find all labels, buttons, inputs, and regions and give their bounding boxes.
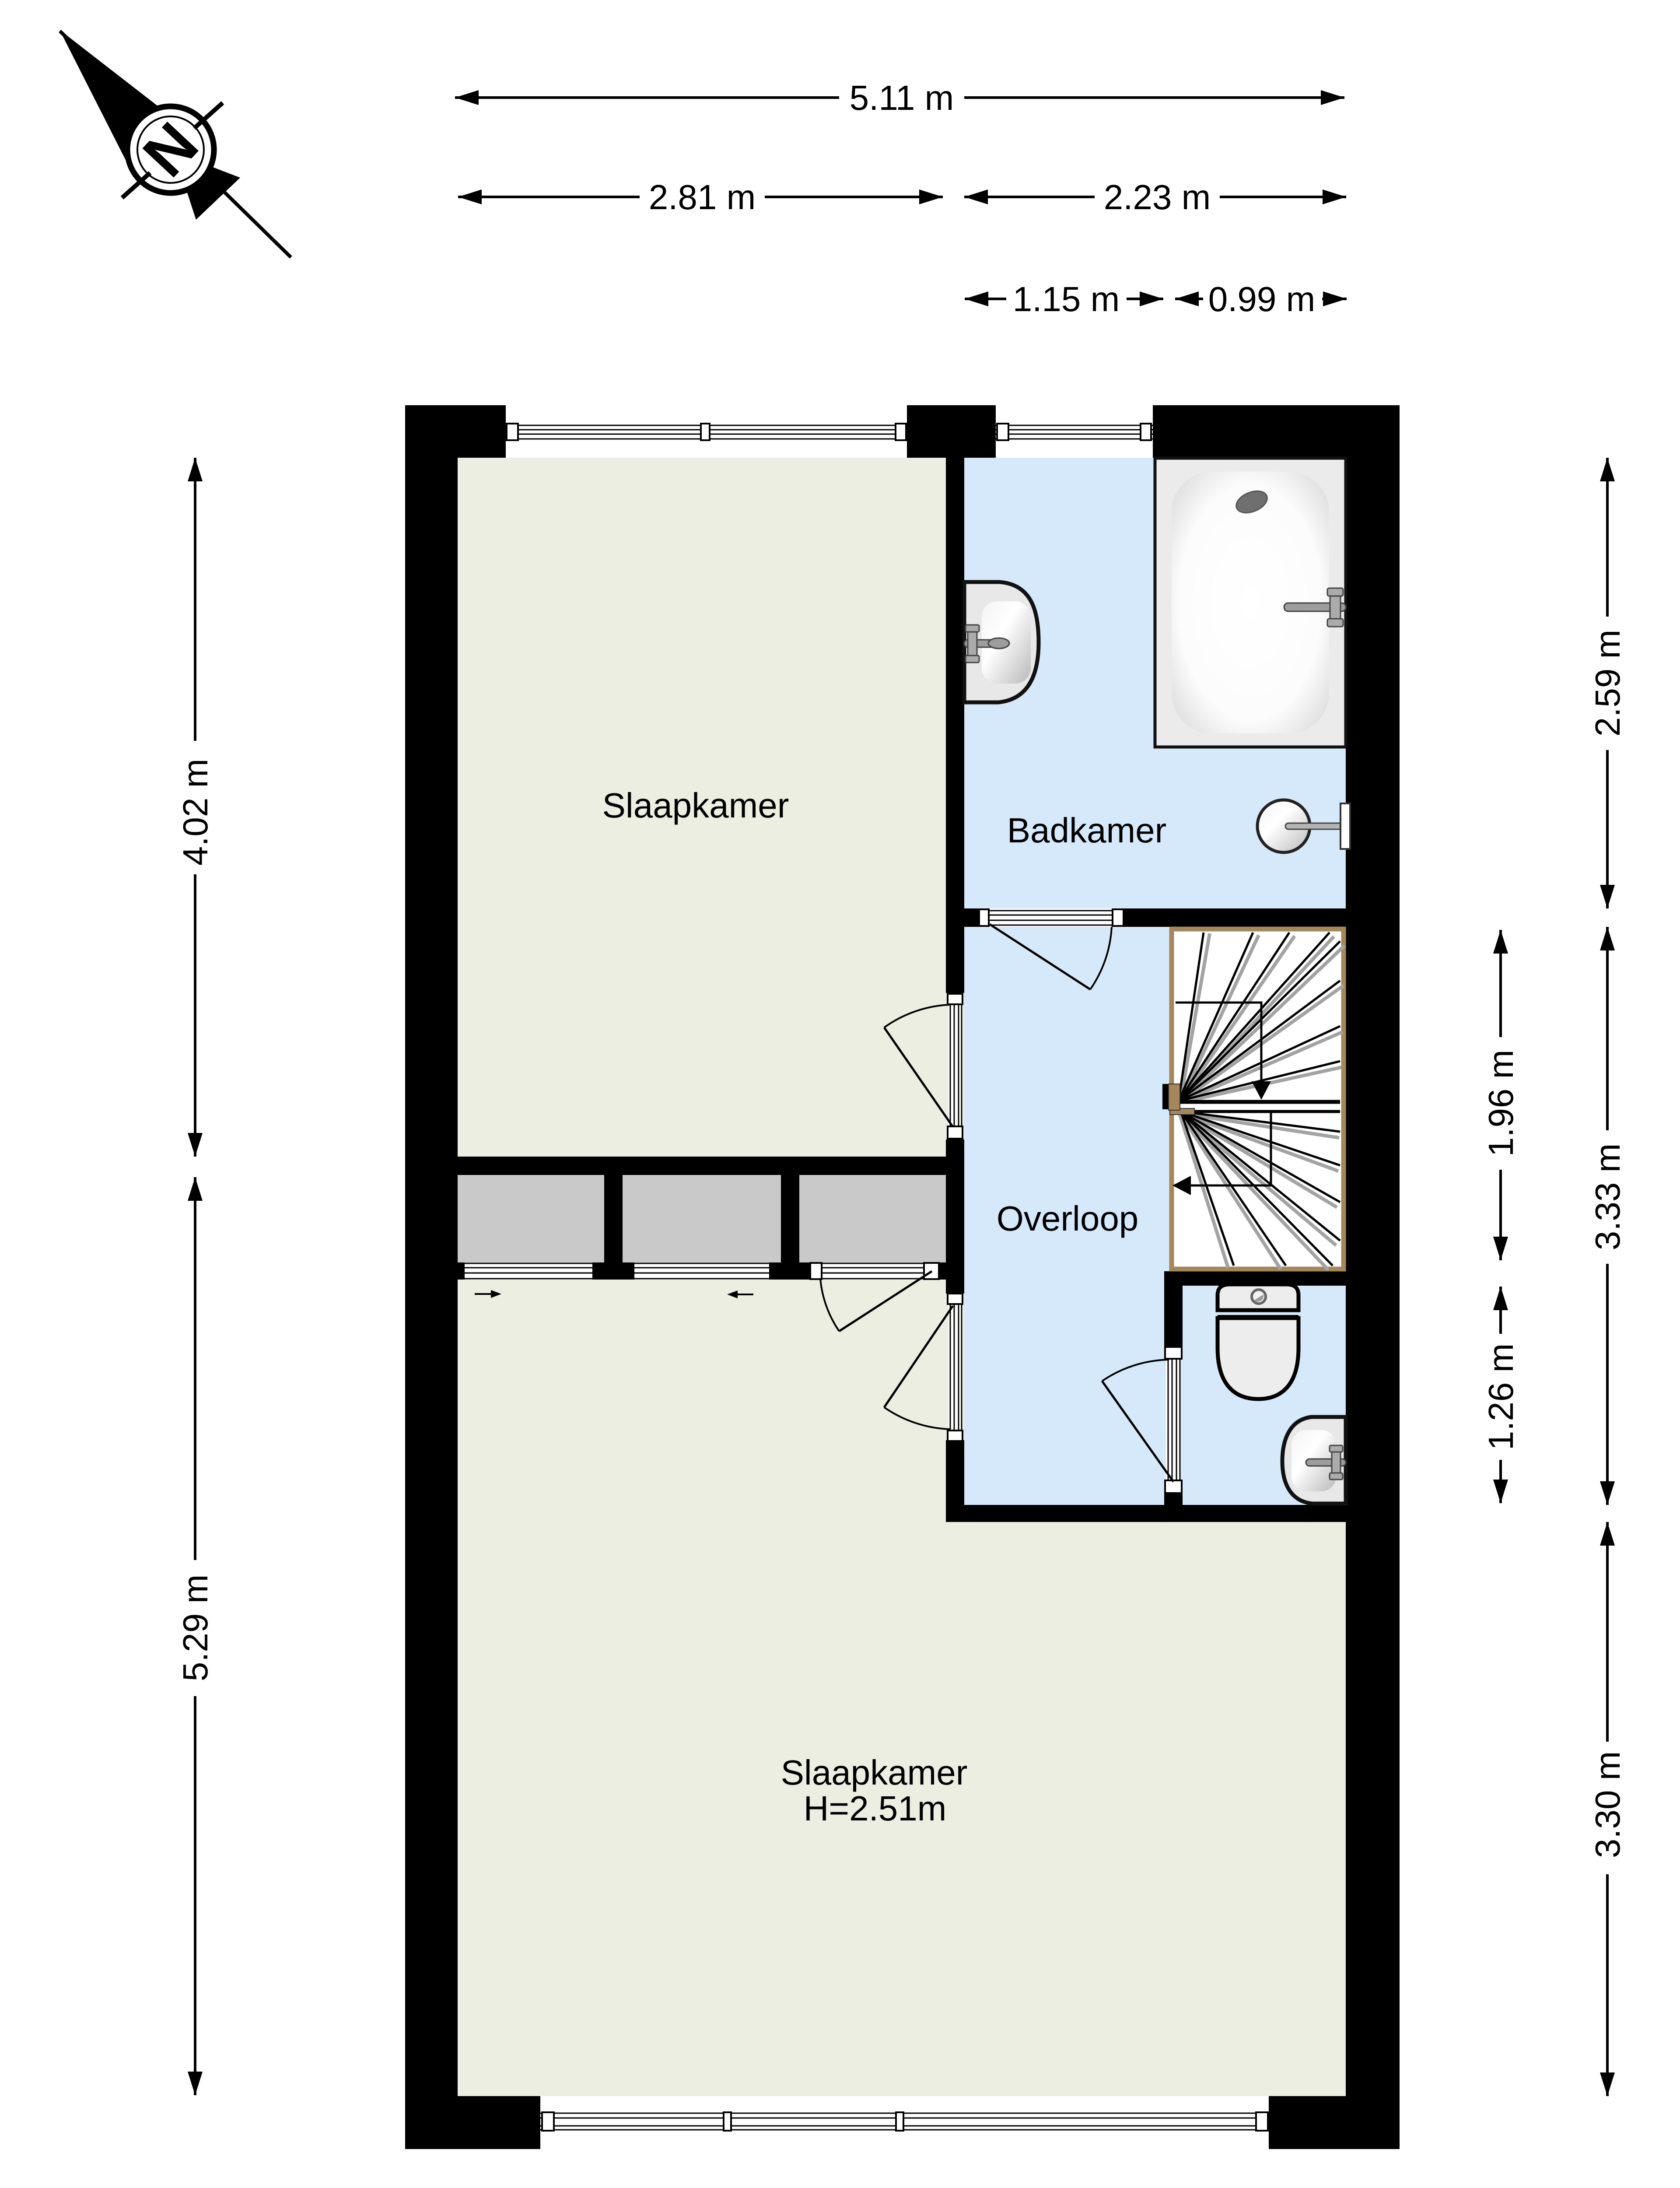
svg-text:Overloop: Overloop [997,1199,1139,1238]
svg-text:3.33 m: 3.33 m [1588,1143,1627,1251]
svg-text:2.23 m: 2.23 m [1104,178,1211,217]
svg-text:2.81 m: 2.81 m [649,178,756,217]
svg-text:5.29 m: 5.29 m [176,1574,215,1682]
svg-text:1.26 m: 1.26 m [1481,1343,1520,1451]
svg-text:1.96 m: 1.96 m [1481,1050,1520,1157]
svg-text:0.99 m: 0.99 m [1208,280,1316,319]
svg-text:5.11 m: 5.11 m [850,78,954,117]
svg-text:Slaapkamer: Slaapkamer [781,1753,968,1792]
svg-text:Badkamer: Badkamer [1007,811,1167,850]
svg-text:Slaapkamer: Slaapkamer [602,786,789,825]
svg-text:1.15 m: 1.15 m [1013,280,1120,319]
svg-text:2.59 m: 2.59 m [1588,630,1627,737]
svg-text:4.02 m: 4.02 m [176,759,215,866]
svg-text:3.30 m: 3.30 m [1588,1751,1627,1858]
svg-text:H=2.51m: H=2.51m [804,1789,947,1828]
